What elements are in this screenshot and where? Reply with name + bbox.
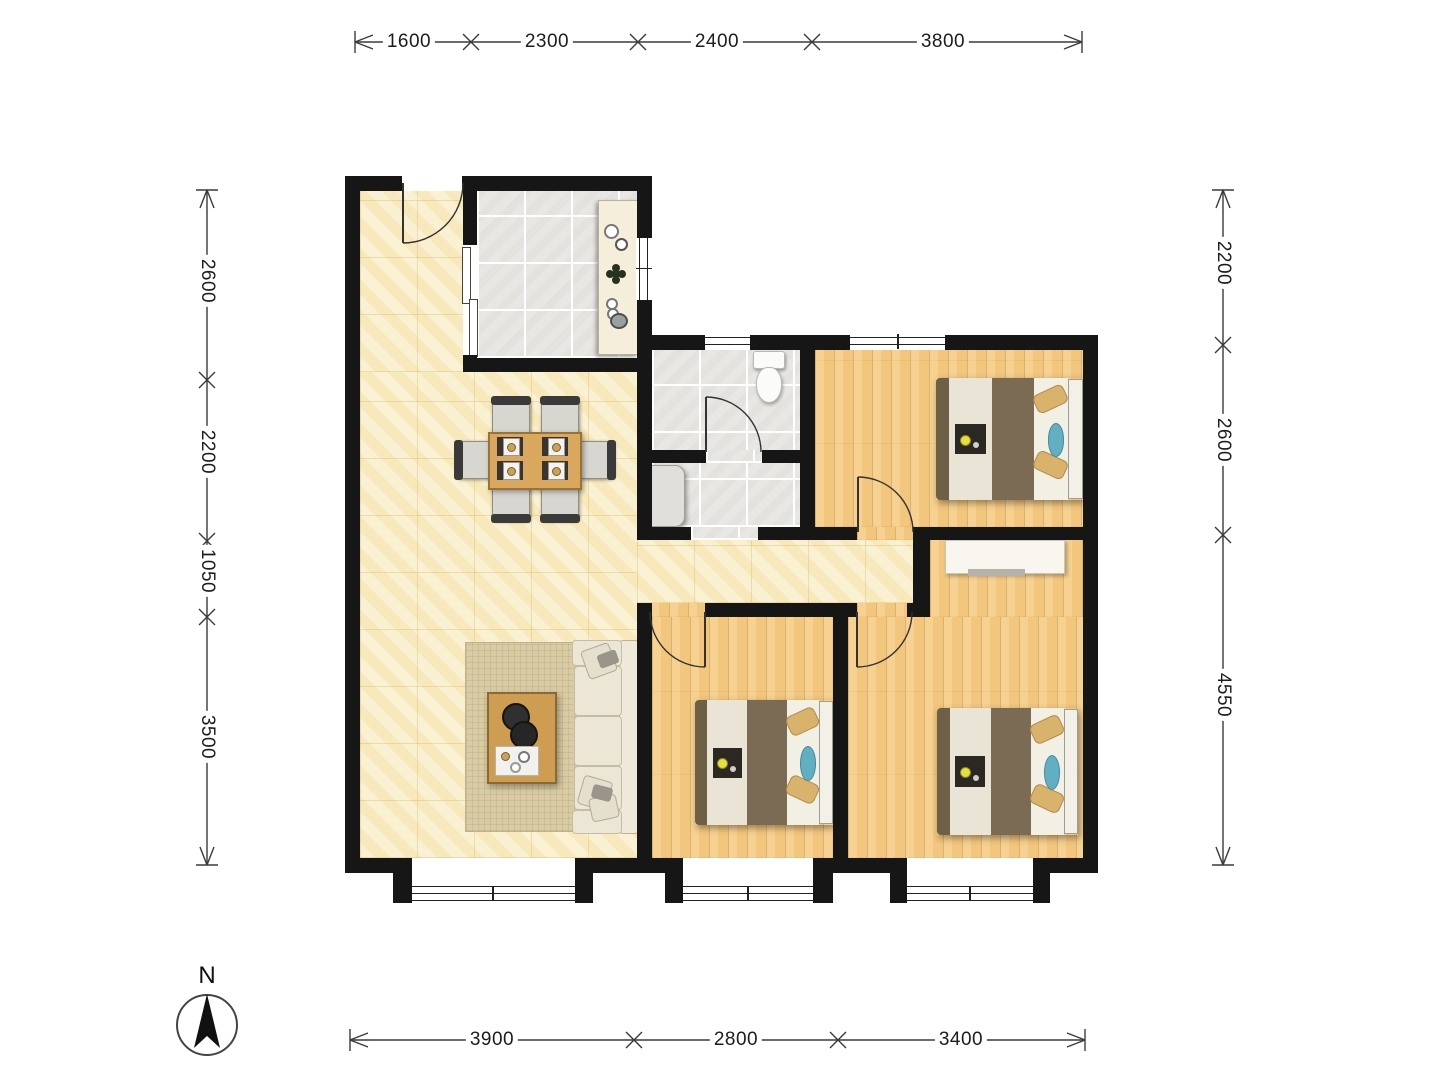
dim-top-3: 2400 bbox=[691, 31, 743, 53]
floor-plan-canvas: 1600 2300 2400 3800 2600 2200 1050 3500 … bbox=[0, 0, 1440, 1080]
bedroom1-door-arc bbox=[858, 477, 913, 532]
compass bbox=[177, 994, 237, 1055]
vector-overlay bbox=[0, 0, 1440, 1080]
dim-left-1: 2600 bbox=[196, 255, 218, 307]
dim-bottom-3: 3400 bbox=[935, 1029, 987, 1051]
dim-top-2: 2300 bbox=[521, 31, 573, 53]
entry-door-arc bbox=[403, 183, 463, 243]
dim-top-4: 3800 bbox=[917, 31, 969, 53]
dim-right-1: 2200 bbox=[1212, 237, 1234, 289]
dimension-lines bbox=[196, 31, 1234, 1051]
door-leaves bbox=[403, 183, 858, 667]
dim-left-4: 3500 bbox=[196, 711, 218, 763]
bedroom2-door-arc bbox=[650, 612, 705, 667]
dim-bottom-2: 2800 bbox=[710, 1029, 762, 1051]
bedroom3-door-arc bbox=[857, 612, 912, 667]
north-label: N bbox=[198, 962, 215, 990]
dim-right-2: 2600 bbox=[1212, 414, 1234, 466]
dim-top-1: 1600 bbox=[383, 31, 435, 53]
dim-left-3: 1050 bbox=[196, 545, 218, 597]
door-arcs bbox=[403, 183, 913, 667]
dim-right-3: 4550 bbox=[1212, 669, 1234, 721]
dim-left-2: 2200 bbox=[196, 426, 218, 478]
bathroom-door-arc bbox=[706, 397, 761, 452]
dim-bottom-1: 3900 bbox=[466, 1029, 518, 1051]
